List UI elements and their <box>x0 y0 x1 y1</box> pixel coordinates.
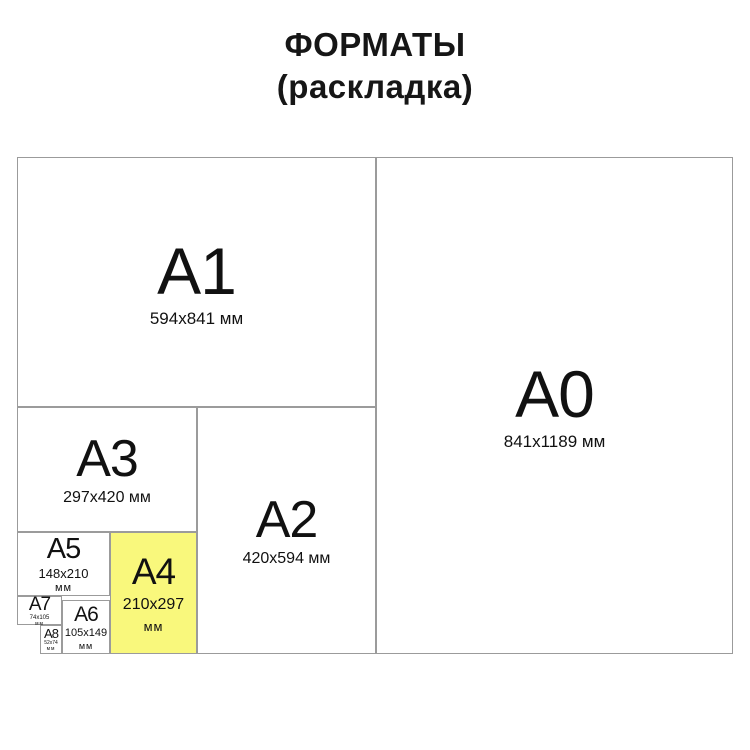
format-box-a3: A3 297x420 мм <box>17 407 197 532</box>
page-title-line2: (раскладка) <box>0 66 750 108</box>
format-label-a2: A2 <box>256 494 318 546</box>
format-label-a1: A1 <box>157 238 236 304</box>
format-size-a1: 594x841 мм <box>150 310 243 327</box>
format-label-a6: A6 <box>74 604 98 625</box>
format-label-a3: A3 <box>76 433 138 485</box>
format-box-a2: A2 420x594 мм <box>197 407 376 654</box>
format-label-a8: A8 <box>44 627 58 640</box>
format-label-a4: A4 <box>132 553 175 590</box>
format-size-a7: 74x105 <box>30 615 50 621</box>
format-unit-a6: мм <box>79 642 93 651</box>
paper-formats-diagram: ФОРМАТЫ (раскладка) A0 841x1189 мм A1 59… <box>0 0 750 750</box>
format-size-a5: 148x210 <box>39 567 89 580</box>
format-unit-a5: мм <box>55 583 72 594</box>
format-box-a6: A6 105x149 мм <box>62 600 110 654</box>
format-size-a2: 420x594 мм <box>243 551 331 567</box>
format-size-a4: 210x297 <box>123 597 184 613</box>
format-box-a5: A5 148x210 мм <box>17 532 110 596</box>
format-size-a3: 297x420 мм <box>63 490 151 506</box>
format-size-a6: 105x149 <box>65 628 107 639</box>
format-unit-a8: мм <box>47 647 56 652</box>
format-box-a1: A1 594x841 мм <box>17 157 376 407</box>
page-title: ФОРМАТЫ (раскладка) <box>0 24 750 108</box>
format-label-a0: A0 <box>515 361 594 427</box>
format-label-a5: A5 <box>47 535 80 564</box>
format-label-a7: A7 <box>29 595 50 614</box>
format-size-a0: 841x1189 мм <box>504 433 606 450</box>
format-box-a8: A8 52x74 мм <box>40 625 62 654</box>
format-box-a4-highlighted: A4 210x297 мм <box>110 532 197 654</box>
page-title-line1: ФОРМАТЫ <box>0 24 750 66</box>
format-box-a0: A0 841x1189 мм <box>376 157 733 654</box>
format-box-a7: A7 74x105 мм <box>17 596 62 625</box>
format-unit-a4: мм <box>144 620 164 633</box>
